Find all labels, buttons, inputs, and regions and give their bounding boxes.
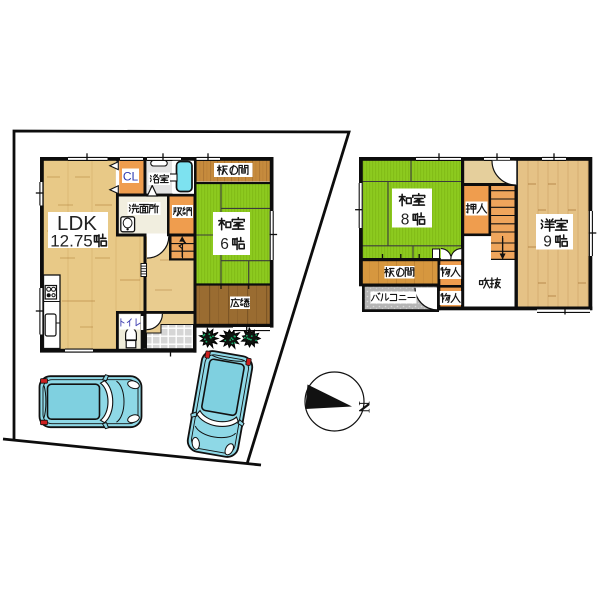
svg-text:CL: CL <box>123 170 139 184</box>
svg-text:6: 6 <box>220 236 229 253</box>
svg-text:N: N <box>355 401 372 413</box>
svg-text:8: 8 <box>401 212 410 229</box>
svg-text:9: 9 <box>543 234 552 251</box>
svg-text:12.75: 12.75 <box>50 232 93 251</box>
